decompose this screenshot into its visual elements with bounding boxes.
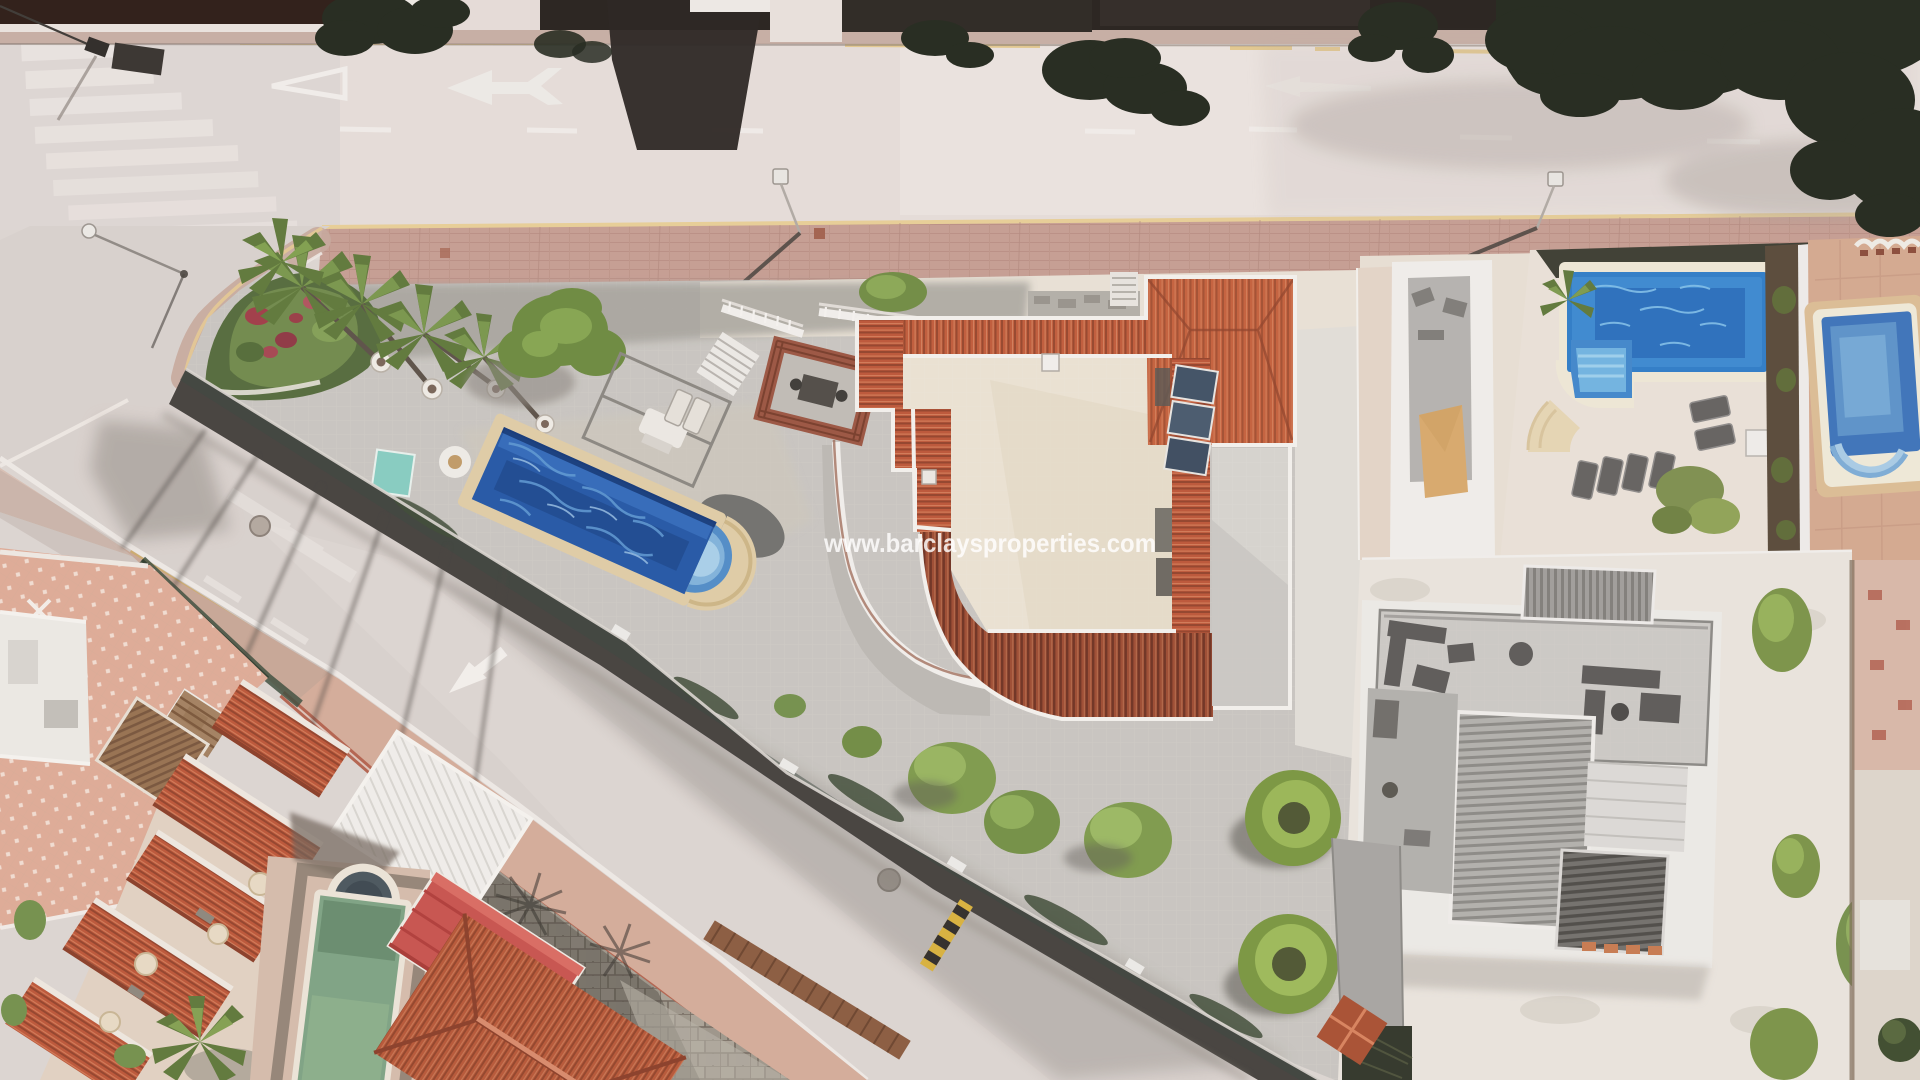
- svg-text:www.barclaysproperties.com: www.barclaysproperties.com: [823, 528, 1156, 558]
